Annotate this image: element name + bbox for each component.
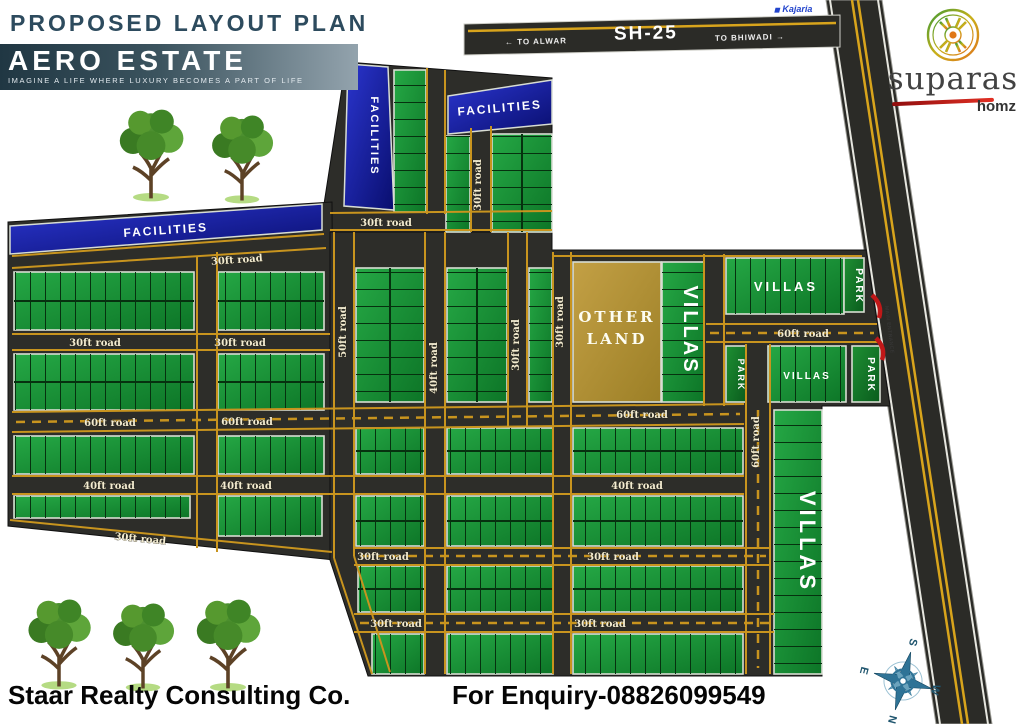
road-label: 40ft road: [429, 342, 440, 394]
plot-block: [218, 272, 324, 330]
plot-block: [218, 436, 324, 474]
estate-tagline: IMAGINE A LIFE WHERE LUXURY BECOMES A PA…: [8, 76, 358, 85]
compass-e: E: [857, 665, 870, 675]
road-label: 60ft road: [751, 416, 762, 468]
other-land-label: LAND: [587, 330, 648, 348]
plot-block: [447, 268, 507, 402]
kajaria-icon: ◼: [774, 7, 780, 14]
estate-name: AERO ESTATE: [8, 46, 358, 76]
plot-block: [447, 428, 553, 474]
plot-block: [14, 272, 194, 330]
kajaria-logo: ◼ Kajaria: [774, 4, 812, 14]
suparas-logo: suparas homz: [884, 6, 1022, 116]
road-label: 50ft road: [338, 306, 349, 358]
page-title: PROPOSED LAYOUT PLAN: [10, 10, 368, 37]
villas-label: VILLAS: [679, 285, 701, 374]
plot-block: [356, 428, 424, 474]
company-name: Staar Realty Consulting Co.: [8, 680, 350, 711]
layout-plan-poster: SH-25 ← TO ALWAR TO BHIWADI → FACILITIES…: [0, 0, 1024, 724]
compass-n: N: [885, 714, 899, 724]
road-label: 30ft road: [574, 619, 626, 630]
villas-label: VILLAS: [783, 371, 831, 382]
plot-block: [356, 268, 424, 402]
brand-name: suparas: [884, 64, 1022, 94]
road-label: 30ft road: [69, 338, 121, 349]
site-map-canvas: SH-25 ← TO ALWAR TO BHIWADI → FACILITIES…: [0, 0, 1024, 724]
plot-block: [218, 496, 322, 536]
to-alwar-label: ← TO ALWAR: [505, 36, 567, 47]
plot-block: [573, 428, 743, 474]
plot-block: [358, 566, 424, 612]
villas-label: VILLAS: [795, 491, 820, 593]
tree-icon: [28, 600, 90, 690]
road-label: 30ft road: [357, 552, 409, 563]
plot-block: [447, 634, 553, 674]
road-label: 30ft road: [473, 159, 484, 211]
other-land-label: OTHER: [578, 308, 655, 326]
plot-block: [394, 70, 426, 212]
road-label: 40ft road: [83, 481, 135, 492]
park-label: PARK: [736, 359, 746, 392]
tree-icon: [197, 600, 261, 692]
kajaria-label: Kajaria: [782, 4, 812, 14]
road-label: 30ft road: [587, 552, 639, 563]
road-label: 30ft road: [360, 218, 412, 229]
road-label: 60ft road: [777, 329, 829, 340]
tree-icon: [212, 115, 273, 203]
plot-block: [446, 136, 470, 232]
road-label: 40ft road: [611, 481, 663, 492]
plot-block: [356, 496, 424, 546]
plot-block: [529, 268, 552, 402]
park-label: PARK: [865, 357, 876, 393]
plot-block: [492, 134, 552, 232]
park-label: PARK: [853, 268, 864, 304]
compass-s: S: [906, 637, 919, 647]
road-label: 30ft road: [370, 619, 422, 630]
plot-block: [14, 436, 194, 474]
enquiry-phone: For Enquiry-08826099549: [452, 680, 766, 711]
tree-icon: [113, 603, 174, 691]
road-label: 30ft road: [511, 319, 522, 371]
mandala-icon: [924, 6, 982, 64]
brand-sub: homz: [977, 98, 1016, 115]
highway-name: SH-25: [614, 22, 678, 45]
plot-block: [14, 354, 194, 410]
road-label: 60ft road: [616, 410, 668, 421]
plot-block: [573, 496, 743, 546]
plot-block: [447, 566, 553, 612]
to-bhiwadi-label: TO BHIWADI →: [715, 32, 785, 43]
plot-block: [218, 354, 324, 410]
estate-banner: AERO ESTATE IMAGINE A LIFE WHERE LUXURY …: [0, 44, 358, 90]
plot-block: [447, 496, 553, 546]
facilities-label: FACILITIES: [368, 96, 380, 175]
plot-block: [573, 566, 743, 612]
road-label: 30ft road: [214, 338, 266, 349]
road-label: 30ft road: [555, 296, 566, 348]
villas-label: VILLAS: [754, 279, 818, 294]
road-label: 60ft road: [221, 417, 273, 428]
road-label: 60ft road: [84, 418, 136, 429]
plot-block: [573, 634, 743, 674]
road-label: 40ft road: [220, 481, 272, 492]
plot-block: [14, 496, 190, 518]
sh25-highway: SH-25 ← TO ALWAR TO BHIWADI →: [464, 15, 840, 55]
tree-icon: [120, 110, 184, 202]
